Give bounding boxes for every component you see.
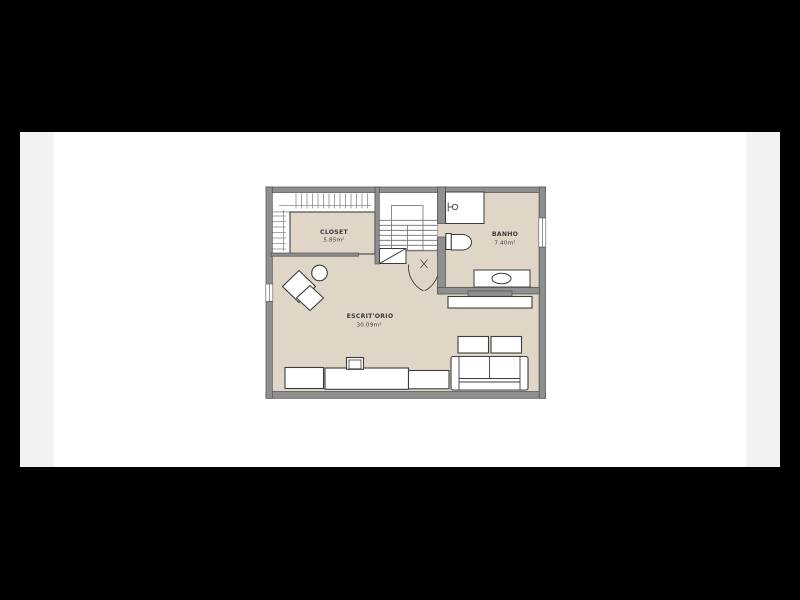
closet-room-name: CLOSET [320,229,348,236]
wall-bottom [266,392,546,399]
wall-left-lower [266,301,272,398]
wall-stair-left [375,187,379,264]
wardrobe-area-left [272,212,290,254]
escritorio-room-name: ESCRIT'ORIO [347,313,394,320]
wall-bath-left-upper [438,187,446,224]
side-table [312,265,328,281]
toilet-bowl [451,235,471,251]
wall-left-upper [266,187,272,285]
screenshot-root: CLOSET 5.85m² BANHO 7.40m² ESCRIT'ORIO 3… [0,0,800,600]
coffee-table-1 [458,337,489,354]
floorplan-drawing: CLOSET 5.85m² BANHO 7.40m² ESCRIT'ORIO 3… [260,180,552,404]
sofa [451,357,528,391]
wall-bath-left-lower [438,237,446,294]
wall-closet-bottom [271,253,359,256]
toilet-tank [446,234,452,250]
banho-room-area: 7.40m² [494,240,515,247]
sink-basin [492,273,511,284]
shower-stall [446,192,485,224]
desk-center [325,368,409,389]
coffee-table-2 [491,337,522,354]
stairwell-area [379,192,438,251]
wall-right-lower [539,247,545,398]
banho-room-name: BANHO [492,231,518,238]
mixer-knob [452,204,457,209]
escritorio-room-area: 30.09m² [356,322,381,329]
monitor-inner [349,360,361,369]
stair-bottom-leaf [380,249,407,264]
desk-right [409,371,450,389]
wall-top [266,187,546,193]
wall-right-upper [539,187,545,218]
closet-room-area: 5.85m² [323,237,344,244]
wall-console [448,297,532,309]
wall-niche [468,291,512,297]
desk-left [285,368,324,389]
